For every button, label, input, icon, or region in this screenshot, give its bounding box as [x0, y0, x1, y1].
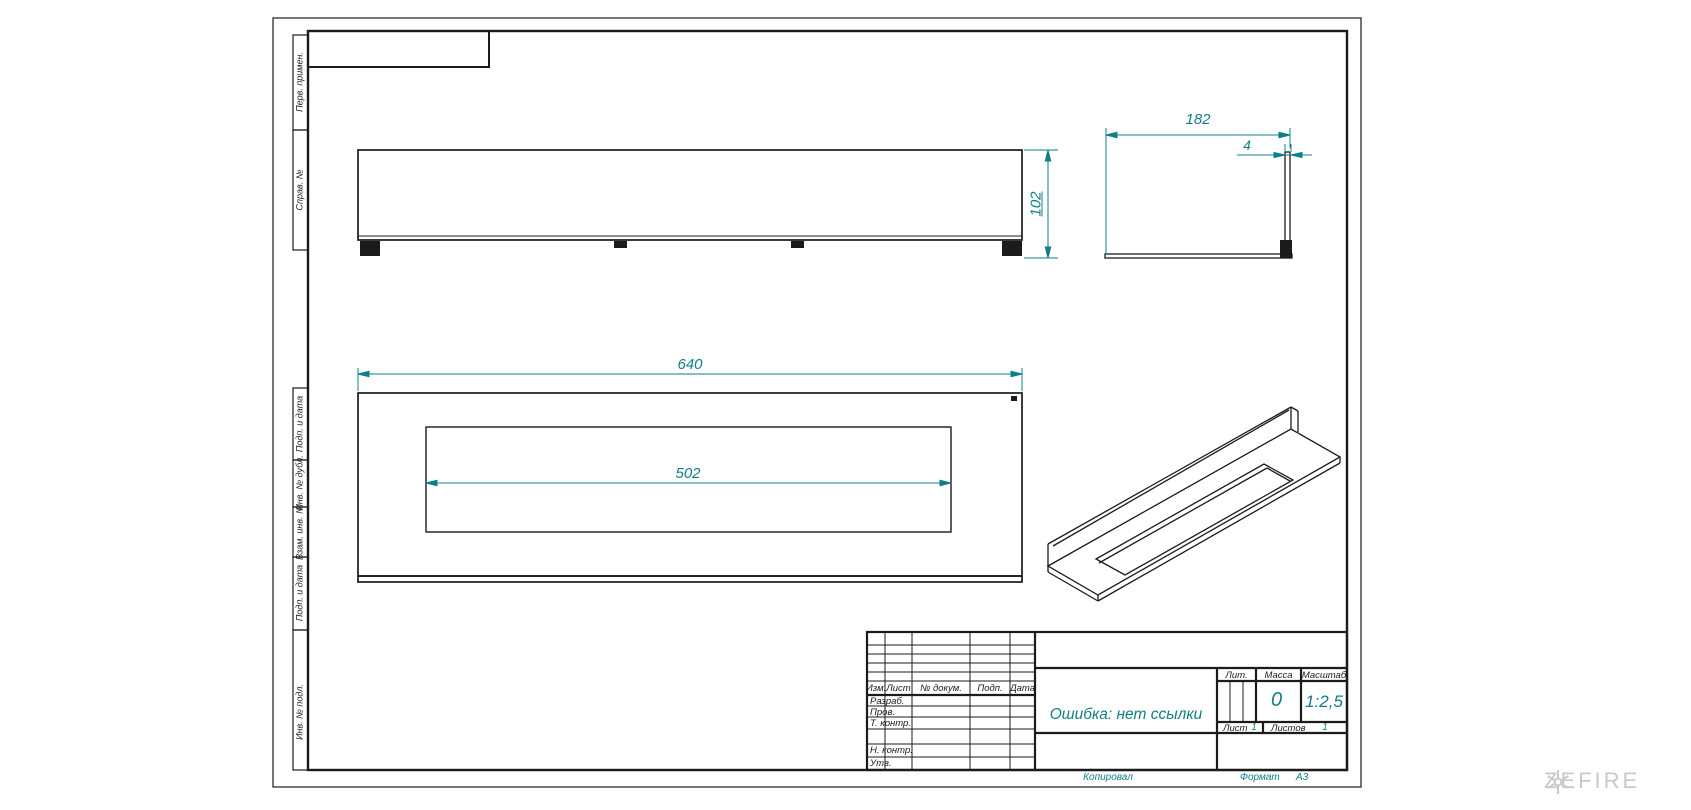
dim-102-value: 102: [1029, 191, 1044, 216]
margin-label-podp-data-1: Подп. и дата: [296, 396, 305, 452]
tb-listov-label: Листов: [1271, 724, 1306, 734]
tb-row-prov: Пров.: [870, 708, 895, 718]
watermark: ZEFIRE: [1544, 768, 1640, 794]
tb-row-razrab: Разраб.: [870, 697, 904, 707]
margin-label-inv-dubl: Инв. № дубл.: [296, 455, 305, 510]
tb-copied-label: Копировал: [1068, 773, 1148, 783]
front-view: [358, 150, 1022, 256]
side-base-flange: [1105, 254, 1292, 258]
plan-view: [358, 393, 1022, 582]
tb-row-tkontr: Т. контр.: [870, 719, 911, 729]
isometric-slot: [1096, 464, 1293, 575]
side-foot: [1280, 240, 1292, 258]
tb-format-value: А3: [1296, 773, 1308, 783]
sheet-inner-frame: [308, 31, 1347, 770]
tb-col-list: Лист: [884, 684, 913, 694]
dim-640-value: 640: [660, 357, 720, 372]
tb-row-utv: Утв.: [870, 759, 892, 769]
sheet-outer-border: [273, 18, 1361, 787]
tb-col-doc: № докум.: [911, 684, 971, 694]
tb-list-value: 1: [1246, 723, 1262, 733]
tb-format-label: Формат: [1240, 773, 1280, 783]
tb-row-nkontr: Н. контр.: [870, 746, 913, 756]
margin-label-vzam-inv: Взам. инв. №: [296, 504, 305, 560]
tb-col-data: Дата: [1009, 684, 1036, 694]
dim-502-value: 502: [658, 466, 718, 481]
plan-front-lip: [358, 576, 1022, 582]
foot-left: [360, 241, 380, 256]
plan-corner-dot: [1011, 396, 1017, 401]
tb-mass-value: 0: [1255, 690, 1298, 710]
top-left-stamp-box: [308, 31, 489, 67]
tb-listov-value: 1: [1317, 723, 1333, 733]
dim-182-lines: [1106, 128, 1290, 254]
tb-lit-label: Лит.: [1216, 671, 1257, 681]
foot-mid-left: [614, 241, 627, 248]
margin-label-podp-data-2: Подп. и дата: [296, 565, 305, 621]
foot-right: [1002, 241, 1022, 256]
tb-scale-value: 1:2,5: [1300, 693, 1348, 710]
foot-mid-right: [791, 241, 804, 248]
margin-label-perv-primen: Перв. примен.: [296, 52, 305, 112]
tb-doc-title: Ошибка: нет ссылки: [1034, 707, 1218, 723]
margin-label-inv-podl: Инв. № подл.: [296, 684, 305, 740]
drawing-linework: [0, 0, 1691, 810]
drawing-page: 640 502 182 4 102 Перв. примен. Справ. №…: [0, 0, 1691, 810]
zefire-snowflake-icon: [1544, 768, 1572, 796]
isometric-view: [1048, 407, 1340, 601]
side-view: [1105, 152, 1292, 258]
margin-label-sprav-no: Справ. №: [296, 170, 305, 211]
tb-col-izm: Изм.: [866, 684, 886, 694]
dim-4-value: 4: [1238, 138, 1256, 152]
tb-list-label: Лист: [1223, 724, 1247, 734]
tb-scale-label: Масштаб: [1300, 671, 1348, 681]
dim-182-value: 182: [1168, 112, 1228, 127]
tb-mass-label: Масса: [1255, 671, 1302, 681]
tb-col-podp: Подп.: [969, 684, 1011, 694]
